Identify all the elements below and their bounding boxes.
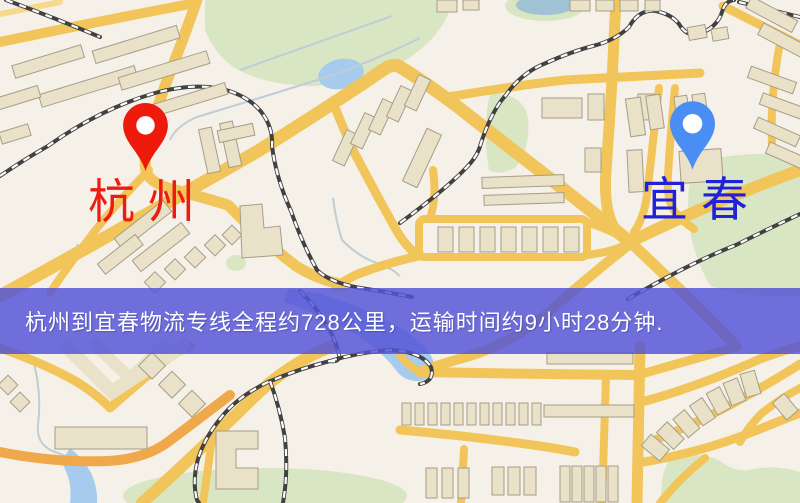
origin-city-label: 杭州 — [88, 180, 208, 227]
pin-hole — [136, 116, 154, 134]
pin-hole — [683, 114, 703, 134]
origin-marker — [122, 101, 169, 173]
red-location-pin-icon — [122, 101, 169, 173]
pin-body — [670, 101, 715, 170]
destination-marker — [669, 99, 716, 172]
route-info-text: 杭州到宜春物流专线全程约728公里，运输时间约9小时28分钟. — [25, 305, 664, 337]
route-info-banner: 杭州到宜春物流专线全程约728公里，运输时间约9小时28分钟. — [0, 288, 800, 354]
map-background — [0, 0, 800, 503]
blue-location-pin-icon — [669, 99, 716, 172]
destination-city-label: 宜春 — [641, 178, 761, 225]
logistics-route-map: 杭州 宜春 杭州到宜春物流专线全程约728公里，运输时间约9小时28分钟. — [0, 0, 800, 503]
pin-body — [123, 103, 168, 171]
